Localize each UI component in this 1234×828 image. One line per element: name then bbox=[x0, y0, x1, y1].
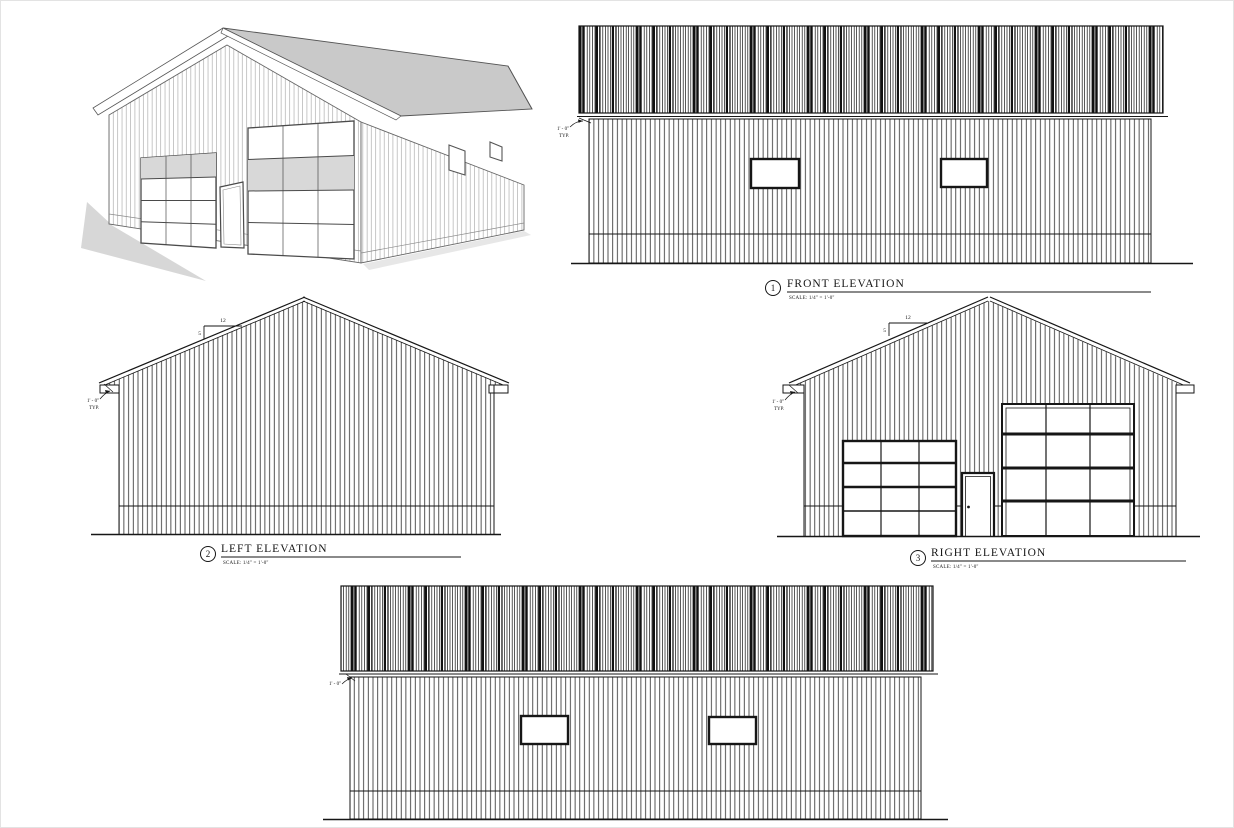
elevation-drawing-canvas: 1' - 0" TYP. 1 FRONT ELEVATION SCALE: 1/… bbox=[1, 1, 1234, 828]
left-eave-block-r bbox=[489, 385, 508, 393]
left-view-number: 2 bbox=[206, 549, 211, 559]
perspective-view bbox=[81, 28, 532, 281]
front-scale-label: SCALE: 1/4" = 1'-0" bbox=[789, 296, 835, 301]
front-note-arrowhead bbox=[578, 119, 583, 122]
right-title-label: RIGHT ELEVATION bbox=[931, 547, 1046, 559]
right-garage-door-small bbox=[843, 441, 956, 536]
right-pitch-rise: 5 bbox=[883, 328, 886, 334]
front-elevation-view: 1' - 0" TYP. 1 FRONT ELEVATION SCALE: 1/… bbox=[557, 26, 1193, 301]
front-overhang-dimension: 1' - 0" bbox=[557, 127, 569, 132]
left-scale-label: SCALE: 1/4" = 1'-0" bbox=[223, 561, 269, 566]
rear-window-right bbox=[709, 717, 756, 744]
perspective-side-window-1 bbox=[449, 145, 465, 175]
front-window-left bbox=[751, 159, 799, 188]
front-note-leader bbox=[570, 121, 583, 127]
rear-wall bbox=[350, 677, 921, 819]
right-eave-block-r bbox=[1176, 385, 1194, 393]
rear-roof-band bbox=[341, 586, 933, 671]
front-window-right bbox=[941, 159, 987, 187]
left-title-label: LEFT ELEVATION bbox=[221, 543, 328, 555]
rear-overhang-dimension: 1' - 0" bbox=[329, 682, 341, 687]
front-overhang-note: 1' - 0" TYP. bbox=[557, 118, 591, 139]
rear-elevation-view: 1' - 0" bbox=[323, 586, 948, 820]
front-wall bbox=[589, 119, 1151, 263]
left-pitch-run: 12 bbox=[220, 318, 226, 324]
right-garage-door-large bbox=[1002, 404, 1134, 536]
right-man-door-knob bbox=[967, 506, 970, 509]
left-elevation-view: 12 5 1' - 0" TYP. 2 LEFT ELEVATION SCALE… bbox=[87, 297, 509, 566]
perspective-side-wall bbox=[361, 122, 524, 263]
right-elevation-title: 3 RIGHT ELEVATION SCALE: 1/4" = 1'-0" bbox=[911, 547, 1187, 570]
front-roof-band bbox=[579, 26, 1163, 113]
right-view-number: 3 bbox=[916, 553, 921, 563]
left-overhang-dimension: 1' - 0" bbox=[87, 399, 99, 404]
perspective-garage-door-small bbox=[141, 153, 216, 248]
left-gable-siding bbox=[104, 301, 504, 534]
perspective-man-door bbox=[220, 182, 244, 248]
perspective-garage-door-large bbox=[248, 121, 354, 259]
right-scale-label: SCALE: 1/4" = 1'-0" bbox=[933, 565, 979, 570]
front-title-label: FRONT ELEVATION bbox=[787, 278, 905, 290]
right-overhang-dimension: 1' - 0" bbox=[772, 400, 784, 405]
right-pitch-run: 12 bbox=[905, 315, 911, 321]
left-overhang-typ: TYP. bbox=[89, 406, 99, 411]
front-view-number: 1 bbox=[771, 283, 776, 293]
drawing-sheet: 1' - 0" TYP. 1 FRONT ELEVATION SCALE: 1/… bbox=[0, 0, 1234, 828]
left-elevation-title: 2 LEFT ELEVATION SCALE: 1/4" = 1'-0" bbox=[201, 543, 462, 566]
right-overhang-typ: TYP. bbox=[774, 407, 784, 412]
right-man-door bbox=[962, 473, 994, 536]
front-overhang-typ: TYP. bbox=[559, 134, 569, 139]
left-pitch-rise: 5 bbox=[198, 331, 201, 337]
front-elevation-title: 1 FRONT ELEVATION SCALE: 1/4" = 1'-0" bbox=[766, 278, 1152, 301]
rear-window-left bbox=[521, 716, 568, 744]
perspective-side-window-2 bbox=[490, 142, 502, 161]
right-elevation-view: 12 5 1' - 0" TYP. 3 RIGHT ELEVATION SCAL… bbox=[772, 297, 1200, 570]
